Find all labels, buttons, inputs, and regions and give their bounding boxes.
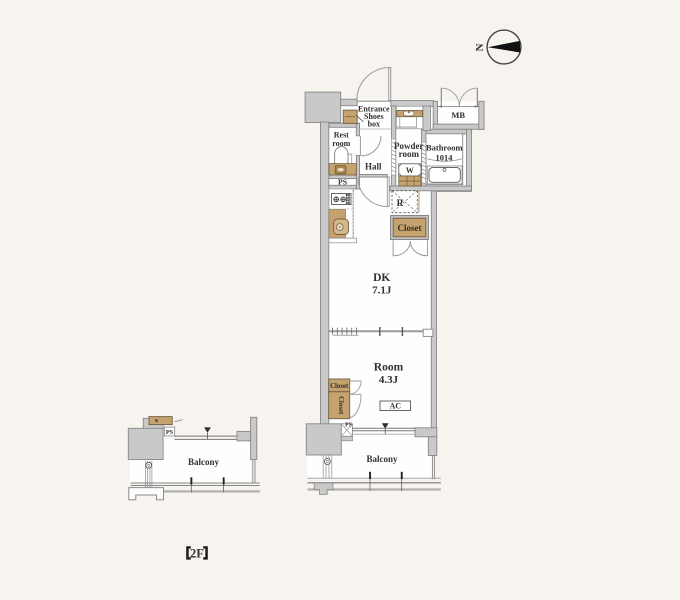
- svg-text:MB: MB: [451, 110, 465, 120]
- svg-text:Room: Room: [374, 362, 404, 374]
- svg-text:Bathroom: Bathroom: [426, 142, 463, 152]
- svg-text:DK: DK: [373, 272, 390, 284]
- svg-text:7.1J: 7.1J: [372, 284, 392, 296]
- svg-text:Closet: Closet: [330, 383, 349, 390]
- svg-text:PS: PS: [166, 429, 174, 436]
- svg-text:room: room: [399, 149, 420, 159]
- svg-text:Closet: Closet: [398, 223, 422, 233]
- svg-text:W: W: [406, 166, 414, 175]
- svg-text:PS: PS: [338, 178, 347, 187]
- svg-text:R: R: [397, 199, 404, 209]
- svg-text:1014: 1014: [436, 152, 454, 162]
- svg-text:4.3J: 4.3J: [379, 374, 399, 386]
- svg-text:PS: PS: [345, 422, 352, 428]
- svg-text:Balcony: Balcony: [188, 457, 220, 467]
- svg-text:2F: 2F: [190, 546, 204, 560]
- svg-text:Closet: Closet: [337, 396, 344, 415]
- svg-text:room: room: [332, 139, 350, 148]
- svg-text:AC: AC: [390, 401, 402, 410]
- svg-text:Balcony: Balcony: [366, 454, 398, 464]
- svg-text:box: box: [368, 120, 380, 129]
- svg-text:Hall: Hall: [365, 161, 382, 171]
- svg-text:N: N: [474, 43, 486, 51]
